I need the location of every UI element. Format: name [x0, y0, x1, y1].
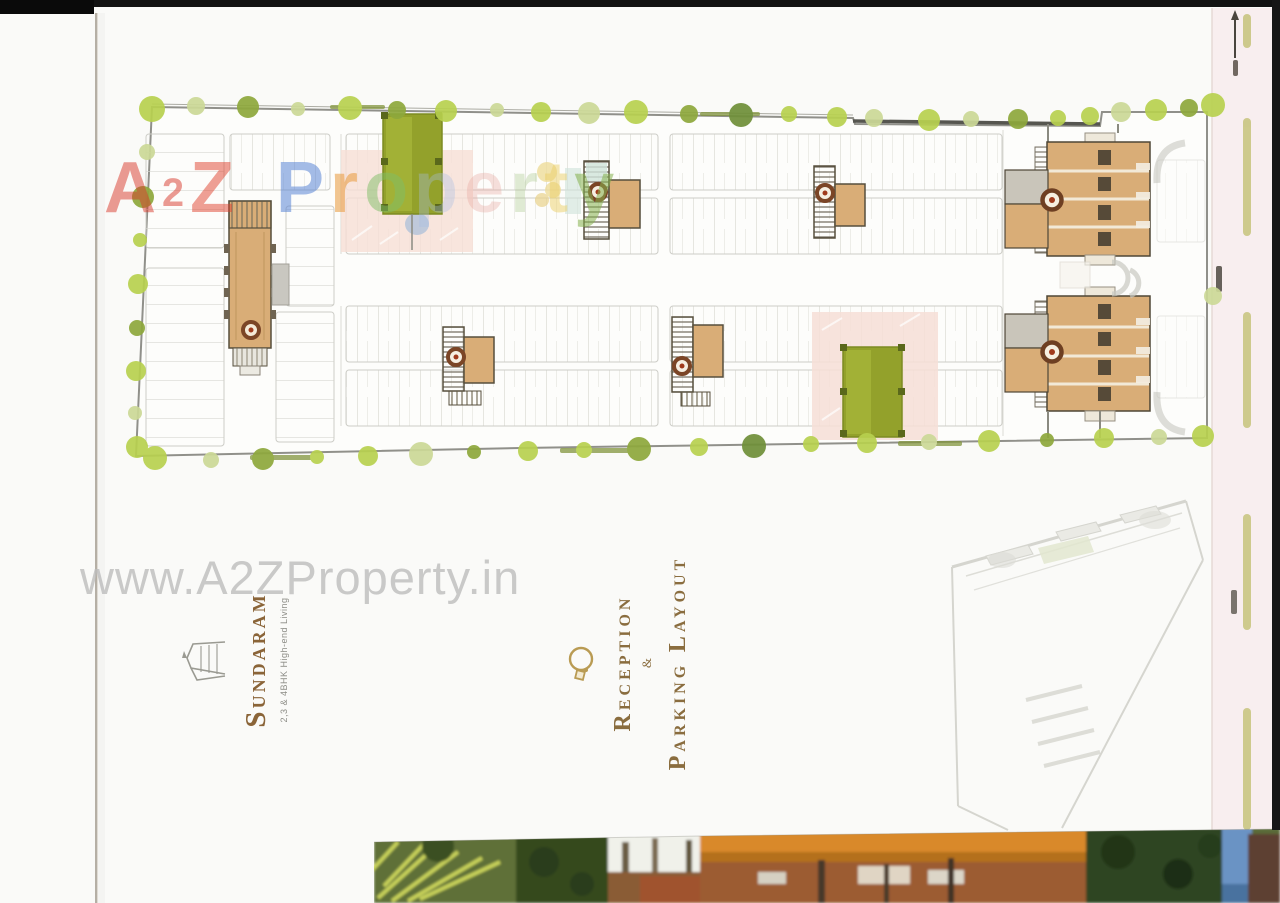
scan-edge-right: [1272, 0, 1280, 830]
road: [1212, 8, 1272, 832]
brand-name: Sundaram: [231, 592, 273, 727]
brand-tagline: 2,3 & 4BHK High-end Living: [279, 597, 289, 722]
brand-block: Sundaram 2,3 & 4BHK High-end Living: [155, 560, 315, 760]
page-fold-line: [95, 13, 97, 903]
scanned-brochure-page: A2ZProperty www.A2ZProperty.in Sundaram …: [0, 0, 1280, 903]
road-label-smudge: [1231, 590, 1237, 614]
brand-logo-icon: [181, 632, 227, 688]
title-ampersand: &: [640, 658, 653, 668]
ring-ornament-icon: [564, 643, 598, 683]
title-parking-layout: Parking Layout: [656, 556, 692, 771]
page-title-block: Reception & Parking Layout: [558, 538, 698, 788]
plaza-lawn-2: [812, 312, 938, 440]
title-reception: Reception: [601, 595, 637, 732]
building-sketch: [952, 501, 1203, 830]
scan-edge-top: [0, 0, 94, 14]
